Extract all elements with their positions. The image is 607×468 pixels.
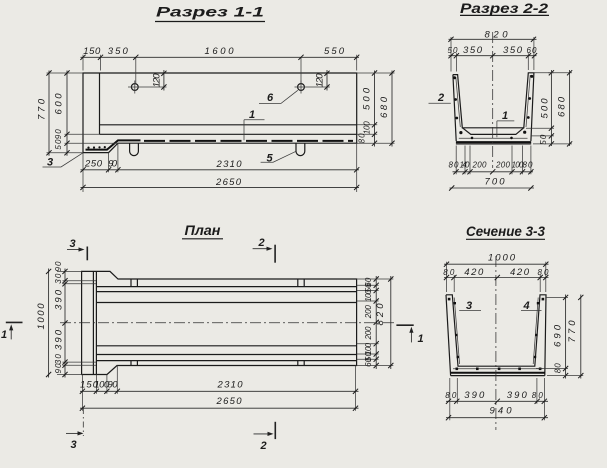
svg-text:690: 690 [553,324,564,347]
svg-text:6: 6 [267,92,274,104]
svg-text:390: 390 [464,390,485,401]
svg-text:30: 30 [54,273,63,284]
svg-text:140: 140 [460,161,471,170]
svg-text:80: 80 [358,133,367,144]
svg-text:200: 200 [495,161,511,170]
svg-text:Разрез 1-1: Разрез 1-1 [156,4,264,20]
svg-text:680: 680 [379,96,390,118]
svg-text:2: 2 [437,92,444,104]
svg-text:350: 350 [503,45,523,56]
svg-text:1600: 1600 [205,46,235,57]
svg-text:80: 80 [538,268,550,277]
svg-text:50: 50 [54,139,63,150]
svg-text:600: 600 [53,93,64,115]
svg-text:420: 420 [464,267,484,278]
svg-text:820: 820 [485,29,509,40]
svg-text:100: 100 [364,289,373,302]
svg-text:1000: 1000 [488,253,516,264]
svg-text:1: 1 [418,333,424,345]
svg-text:90: 90 [108,380,119,391]
svg-text:80: 80 [449,161,460,170]
svg-text:80: 80 [443,268,455,277]
svg-text:50: 50 [539,134,548,145]
svg-text:200: 200 [472,161,488,170]
svg-text:1: 1 [1,329,7,341]
svg-text:120: 120 [315,73,326,88]
svg-text:820: 820 [375,303,386,326]
svg-text:Разрез 2-2: Разрез 2-2 [460,0,548,16]
svg-text:1: 1 [502,110,508,122]
svg-text:90: 90 [54,261,63,272]
svg-text:700: 700 [485,177,506,188]
svg-text:Сечение 3-3: Сечение 3-3 [466,223,545,239]
svg-text:3: 3 [47,156,53,168]
svg-text:90: 90 [108,159,118,170]
svg-text:680: 680 [557,96,568,117]
svg-text:1: 1 [249,109,255,121]
svg-text:500: 500 [539,98,550,119]
svg-text:2: 2 [260,440,267,452]
svg-text:120: 120 [151,73,162,88]
svg-text:350: 350 [463,45,483,56]
svg-text:План: План [185,222,222,238]
svg-text:100: 100 [363,121,372,135]
svg-text:30: 30 [54,354,63,365]
svg-text:250: 250 [84,159,103,170]
svg-text:420: 420 [510,267,530,278]
svg-text:1000: 1000 [36,303,47,330]
svg-text:2: 2 [258,237,265,249]
svg-text:50: 50 [448,46,459,55]
svg-text:90: 90 [54,129,63,140]
svg-text:770: 770 [36,98,47,120]
svg-text:940: 940 [490,405,513,416]
svg-text:550: 550 [324,46,345,57]
svg-text:90: 90 [54,363,63,374]
svg-text:80: 80 [553,363,562,374]
svg-text:60: 60 [527,46,538,55]
svg-text:200: 200 [364,326,373,341]
svg-text:390: 390 [54,289,65,310]
svg-text:3: 3 [70,238,76,250]
svg-text:80: 80 [523,161,534,170]
svg-text:3: 3 [71,439,77,451]
svg-text:2310: 2310 [216,159,243,170]
svg-text:500: 500 [362,87,373,110]
svg-text:80: 80 [445,391,457,400]
svg-text:350: 350 [108,46,129,57]
svg-text:2650: 2650 [215,177,242,188]
svg-text:770: 770 [567,320,578,343]
svg-text:200: 200 [364,305,373,320]
svg-text:150: 150 [83,46,101,57]
svg-text:390: 390 [507,390,528,401]
svg-text:2310: 2310 [217,380,244,391]
svg-text:2650: 2650 [216,396,243,407]
svg-text:390: 390 [54,329,65,350]
svg-text:80: 80 [532,391,544,400]
